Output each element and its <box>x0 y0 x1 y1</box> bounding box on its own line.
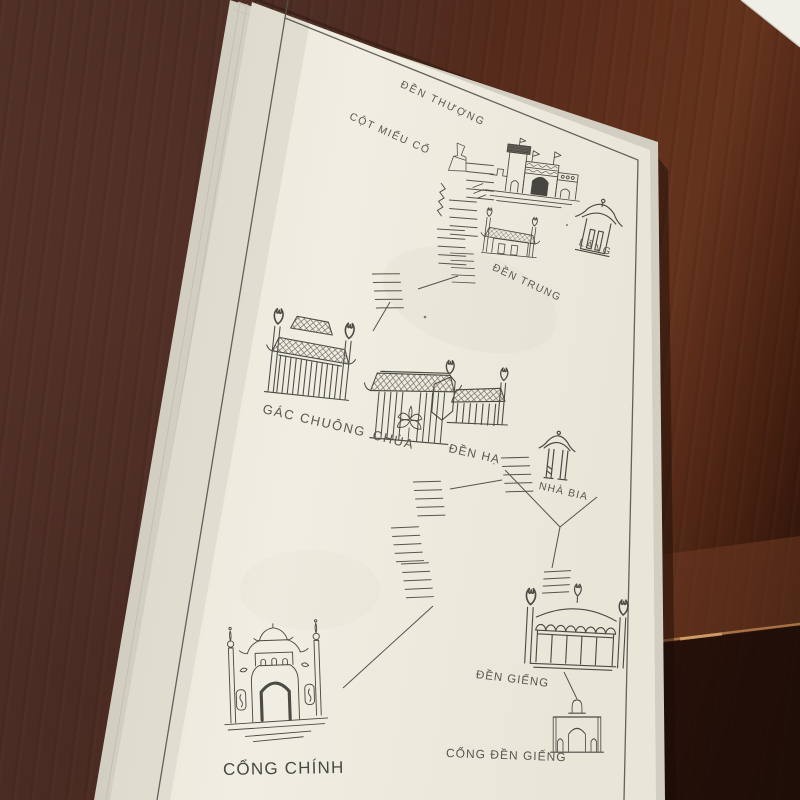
white-paper-corner <box>741 0 800 47</box>
sketch-map-drawing <box>0 0 800 800</box>
photo-of-book-page: ĐỀN THƯỢNG CỘT MIẾU CỔ LĂNG ĐỀN TRUNG GÁ… <box>0 0 800 800</box>
